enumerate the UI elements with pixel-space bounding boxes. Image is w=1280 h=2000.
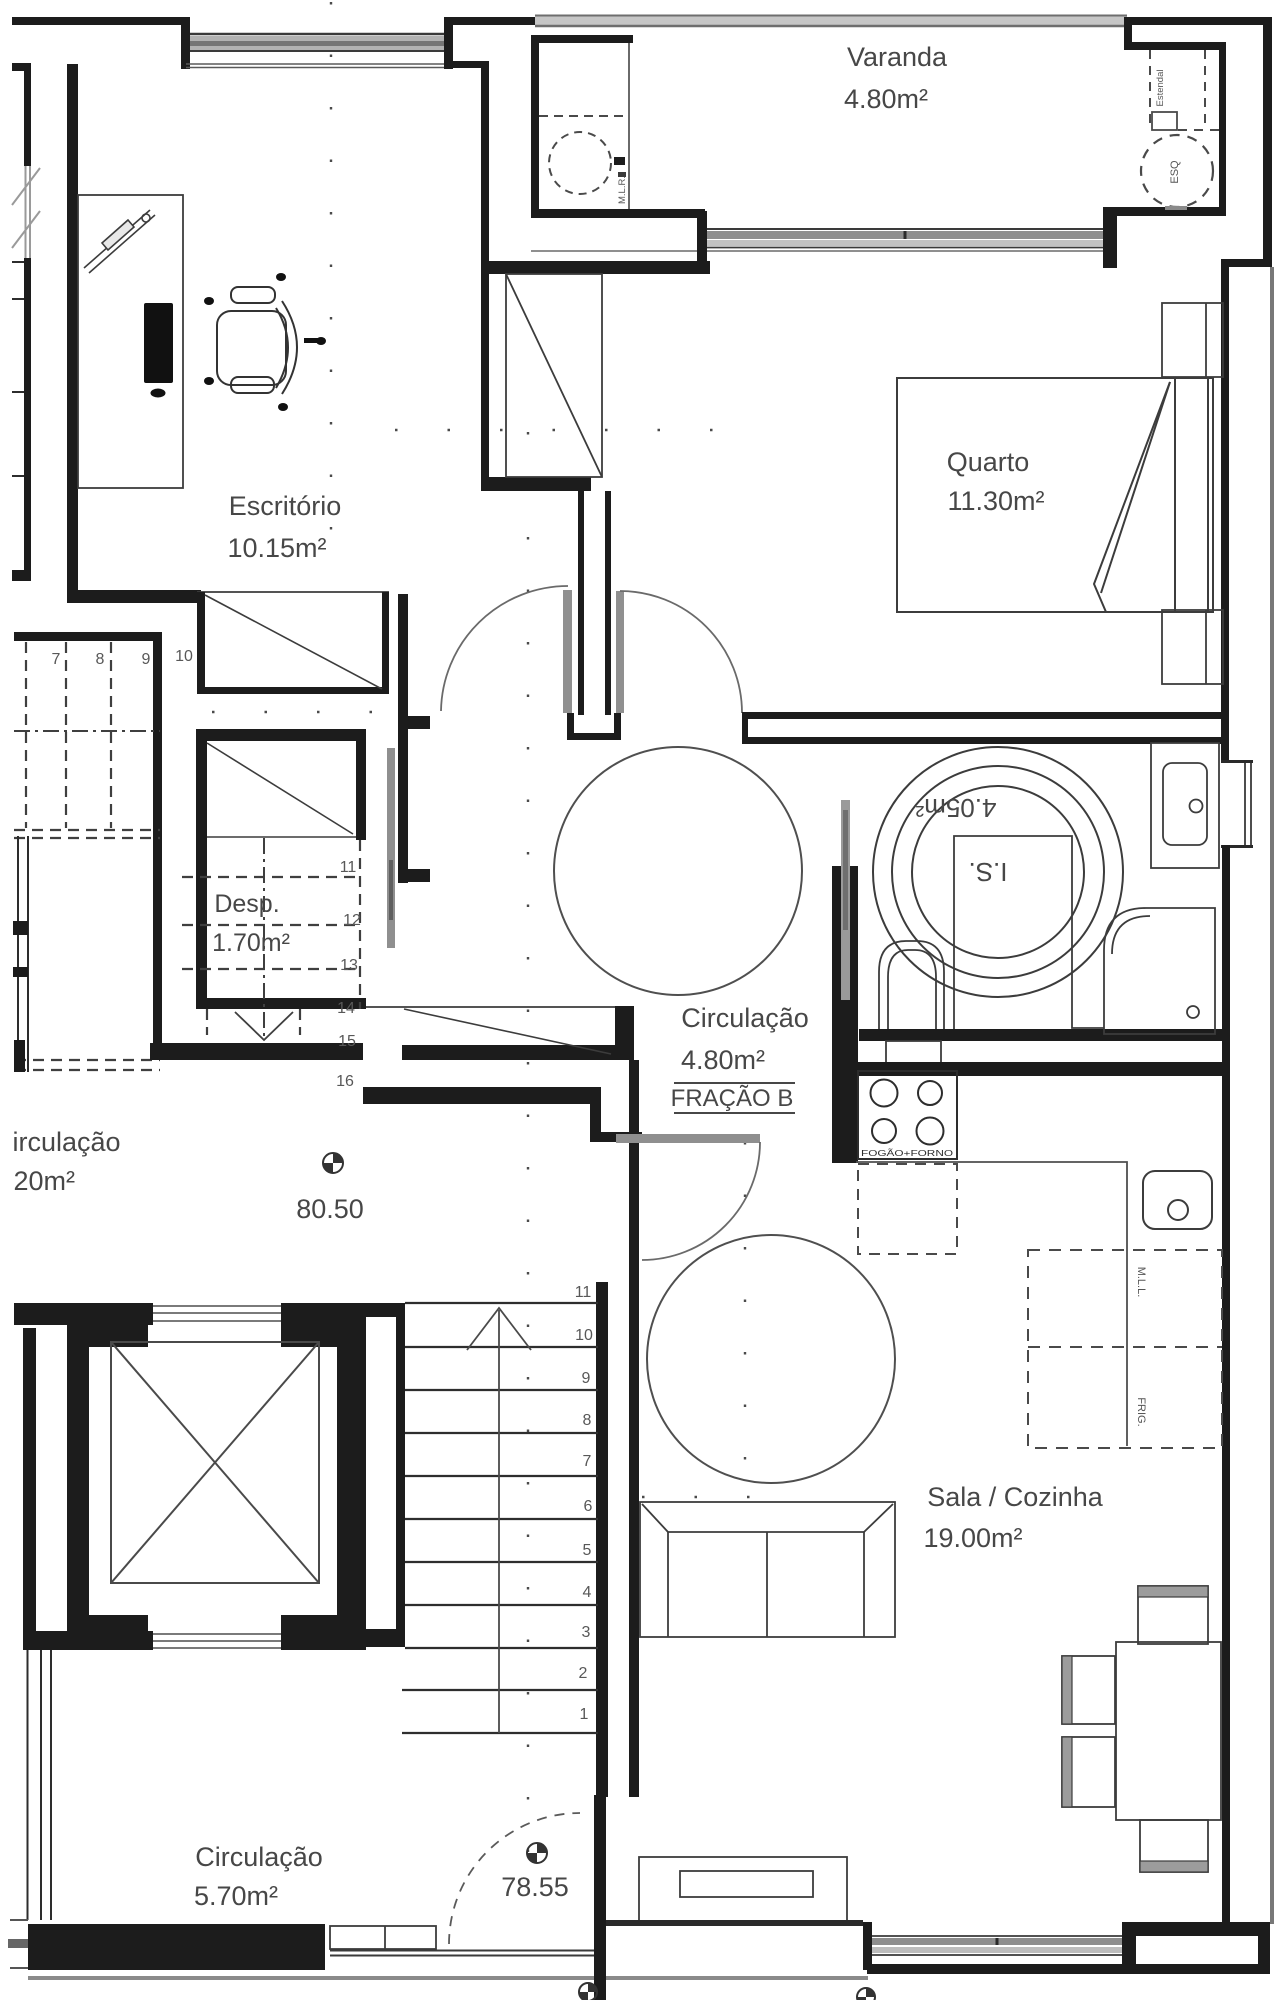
svg-text:7: 7 bbox=[583, 1453, 592, 1470]
svg-text:13: 13 bbox=[340, 957, 358, 974]
svg-text:80.50: 80.50 bbox=[296, 1194, 364, 1224]
svg-text:8: 8 bbox=[96, 651, 105, 668]
svg-text:10: 10 bbox=[175, 648, 193, 665]
svg-text:8: 8 bbox=[583, 1412, 592, 1429]
svg-text:Circulação: Circulação bbox=[195, 1842, 323, 1872]
svg-text:10.15m²: 10.15m² bbox=[227, 533, 326, 563]
svg-text:2: 2 bbox=[579, 1665, 588, 1682]
svg-text:Sala / Cozinha: Sala / Cozinha bbox=[927, 1482, 1104, 1512]
svg-text:4.05m²: 4.05m² bbox=[915, 793, 996, 823]
svg-text:Circulação: Circulação bbox=[0, 1127, 121, 1157]
svg-text:11: 11 bbox=[575, 1284, 592, 1301]
svg-text:FRAÇÃO B: FRAÇÃO B bbox=[671, 1085, 794, 1112]
svg-text:Circulação: Circulação bbox=[681, 1003, 809, 1033]
svg-text:I.S.: I.S. bbox=[968, 857, 1007, 887]
svg-text:9: 9 bbox=[142, 651, 151, 668]
svg-text:10: 10 bbox=[575, 1327, 593, 1344]
svg-text:11: 11 bbox=[340, 859, 357, 876]
svg-text:4.80m²: 4.80m² bbox=[844, 84, 928, 114]
svg-text:FOGÃO+FORNO: FOGÃO+FORNO bbox=[861, 1149, 953, 1158]
svg-text:1.70m²: 1.70m² bbox=[212, 929, 290, 957]
svg-text:14: 14 bbox=[337, 1000, 355, 1017]
svg-text:Estendal: Estendal bbox=[1155, 70, 1166, 107]
svg-text:4: 4 bbox=[583, 1584, 592, 1601]
svg-text:6: 6 bbox=[584, 1498, 593, 1515]
svg-text:12: 12 bbox=[343, 912, 361, 929]
svg-text:Quarto: Quarto bbox=[947, 447, 1030, 477]
svg-text:16: 16 bbox=[336, 1073, 354, 1090]
svg-text:78.55: 78.55 bbox=[501, 1872, 569, 1902]
svg-text:5.70m²: 5.70m² bbox=[194, 1881, 278, 1911]
svg-text:M.L.R.: M.L.R. bbox=[617, 176, 628, 204]
svg-text:9: 9 bbox=[582, 1370, 591, 1387]
svg-text:Desp.: Desp. bbox=[214, 890, 279, 918]
svg-text:15: 15 bbox=[338, 1033, 356, 1050]
svg-text:Varanda: Varanda bbox=[847, 42, 948, 72]
svg-text:Escritório: Escritório bbox=[229, 491, 342, 521]
svg-text:19.00m²: 19.00m² bbox=[923, 1523, 1022, 1553]
svg-text:ESQ: ESQ bbox=[1169, 160, 1181, 184]
svg-text:11.30m²: 11.30m² bbox=[947, 486, 1044, 516]
svg-text:1: 1 bbox=[580, 1706, 589, 1723]
svg-text:5: 5 bbox=[583, 1542, 592, 1559]
svg-text:7: 7 bbox=[52, 651, 61, 668]
svg-text:4.80m²: 4.80m² bbox=[681, 1045, 765, 1075]
svg-text:M.L.L.: M.L.L. bbox=[1135, 1267, 1147, 1298]
svg-text:3: 3 bbox=[582, 1624, 591, 1641]
svg-text:FRIG.: FRIG. bbox=[1135, 1397, 1147, 1426]
